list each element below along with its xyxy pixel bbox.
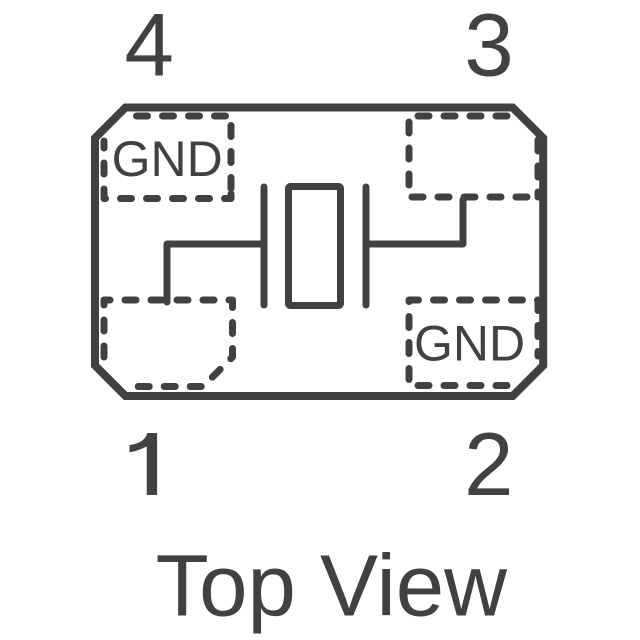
svg-text:2: 2 [464,414,514,514]
svg-text:3: 3 [464,0,514,95]
svg-text:GND: GND [112,131,223,187]
svg-text:GND: GND [414,316,525,372]
svg-text:4: 4 [124,0,174,95]
svg-text:Top View: Top View [156,538,509,635]
